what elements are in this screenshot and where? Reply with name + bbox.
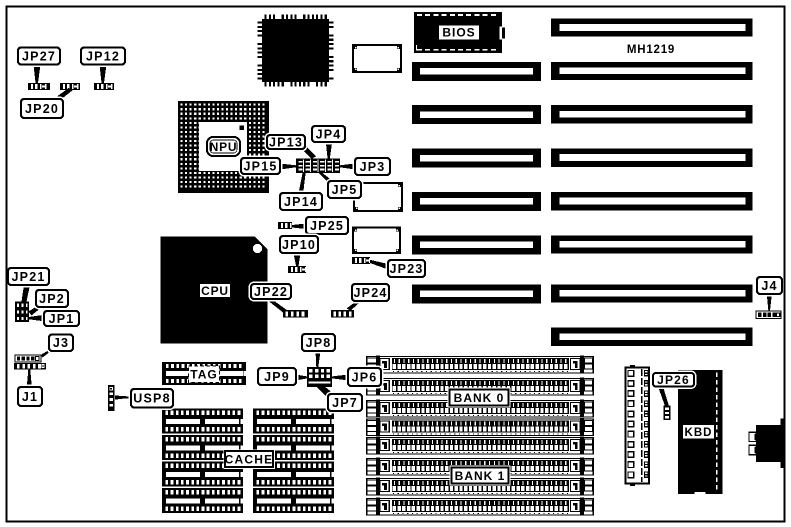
svg-text:JP10: JP10: [282, 238, 316, 252]
svg-text:JP8: JP8: [306, 336, 332, 350]
svg-text:CPU: CPU: [201, 284, 229, 298]
svg-text:NPU: NPU: [210, 140, 238, 154]
svg-text:BANK 1: BANK 1: [455, 469, 506, 483]
svg-text:JP22: JP22: [254, 285, 288, 299]
svg-text:JP6: JP6: [352, 370, 378, 384]
svg-text:JP12: JP12: [86, 49, 120, 63]
svg-text:JP3: JP3: [360, 160, 386, 174]
svg-text:JP26: JP26: [657, 373, 690, 387]
svg-text:TAG: TAG: [190, 368, 217, 382]
svg-text:J1: J1: [22, 390, 38, 404]
svg-text:JP4: JP4: [316, 127, 342, 141]
svg-text:JP27: JP27: [22, 49, 56, 63]
svg-text:JP9: JP9: [264, 370, 290, 384]
svg-text:USP8: USP8: [133, 392, 170, 406]
svg-text:JP2: JP2: [39, 292, 65, 306]
svg-text:JP13: JP13: [269, 135, 303, 149]
svg-text:J4: J4: [761, 279, 777, 293]
svg-text:JP21: JP21: [12, 270, 46, 284]
svg-text:BIOS: BIOS: [442, 26, 475, 40]
svg-text:JP20: JP20: [25, 102, 59, 116]
svg-text:JP14: JP14: [284, 195, 318, 209]
svg-text:JP7: JP7: [332, 396, 358, 410]
svg-text:JP1: JP1: [49, 312, 75, 326]
svg-text:MH1219: MH1219: [627, 44, 675, 56]
svg-text:JP24: JP24: [354, 286, 388, 300]
svg-text:JP23: JP23: [390, 262, 424, 276]
svg-text:BANK 0: BANK 0: [454, 391, 505, 405]
svg-text:KBD: KBD: [685, 427, 713, 439]
svg-text:JP15: JP15: [244, 159, 278, 173]
svg-text:JP25: JP25: [310, 219, 344, 233]
svg-text:JP5: JP5: [332, 183, 358, 197]
svg-text:J3: J3: [53, 336, 69, 350]
svg-text:CACHE: CACHE: [225, 453, 274, 467]
